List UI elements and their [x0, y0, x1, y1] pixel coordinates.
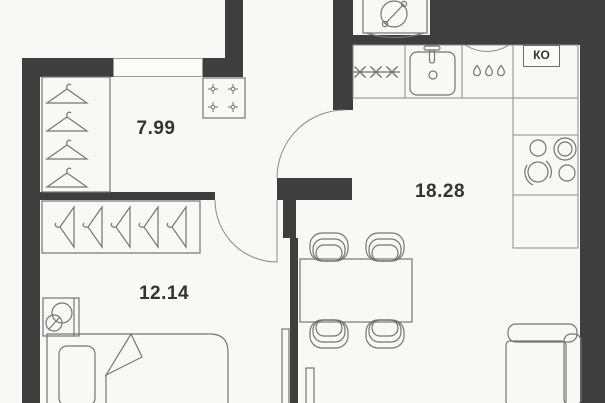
electric-hob-icon — [203, 78, 245, 118]
droplets-icon — [465, 45, 509, 76]
hall-wardrobe — [42, 77, 110, 192]
bedroom-area-label: 12.14 — [118, 283, 210, 305]
sofa-icon — [506, 324, 581, 403]
lamp-icon — [43, 298, 79, 336]
duct-label-box: КО — [523, 45, 560, 67]
bed-icon — [47, 334, 228, 403]
hanger-icon — [55, 207, 186, 247]
bedroom-wardrobe — [42, 201, 200, 253]
tv-icon — [282, 329, 314, 403]
hall-area-label: 7.99 — [118, 118, 194, 140]
floor-plan: 7.99 12.14 18.28 КО — [0, 0, 605, 403]
pillow — [59, 346, 95, 403]
hanger-icon — [47, 84, 87, 187]
stars-icon — [352, 67, 400, 78]
furniture-layer — [0, 0, 605, 403]
blanket-fold — [106, 334, 142, 375]
kitchen-counter — [353, 45, 578, 248]
dining-table-icon — [300, 259, 412, 322]
washing-machine-icon — [363, 0, 427, 38]
stove-icon — [525, 138, 576, 185]
chair-icon — [310, 233, 404, 348]
kitchen-living-area-label: 18.28 — [395, 181, 485, 203]
sink-icon — [410, 46, 455, 95]
